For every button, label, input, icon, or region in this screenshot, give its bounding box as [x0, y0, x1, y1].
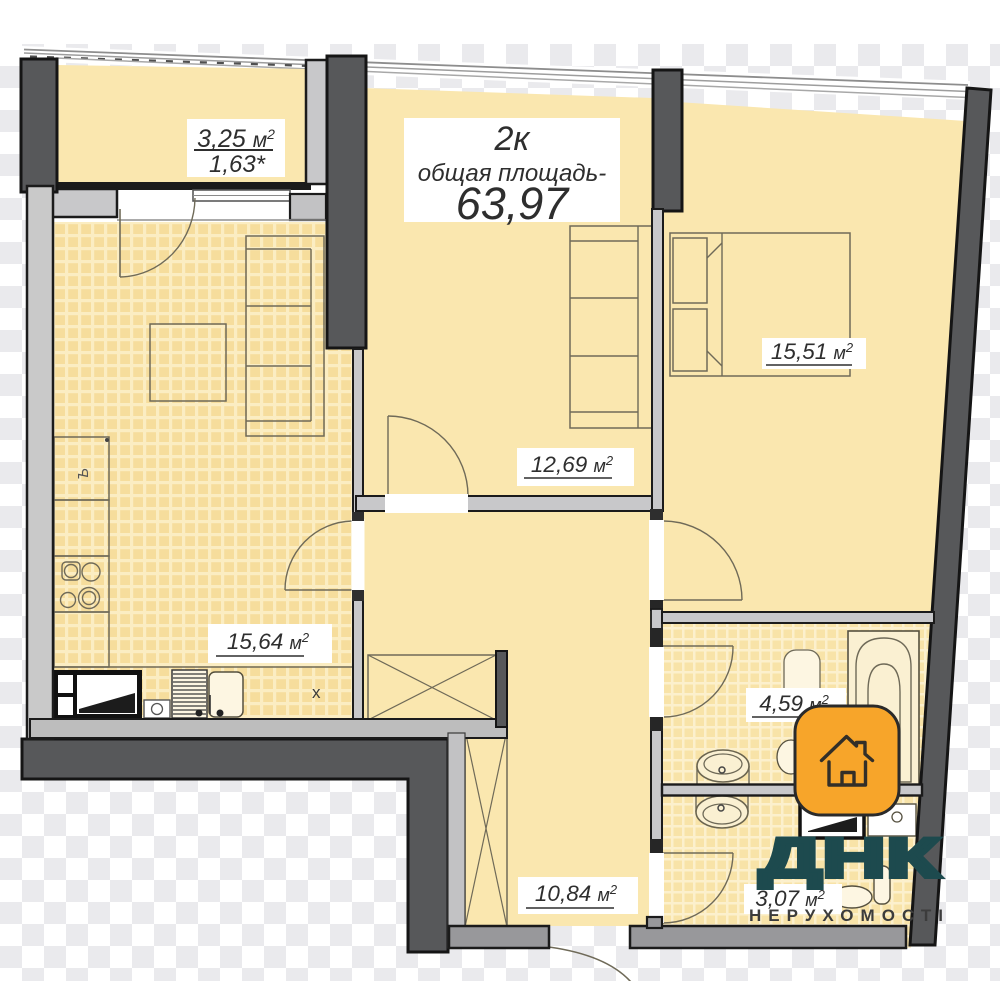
svg-text:63,97: 63,97 [456, 178, 571, 229]
svg-text:15,51 м2: 15,51 м2 [771, 339, 854, 364]
svg-text:Ъ: Ъ [75, 468, 92, 480]
svg-text:15,64 м2: 15,64 м2 [227, 629, 310, 654]
svg-text:12,69 м2: 12,69 м2 [531, 452, 614, 477]
svg-text:1,63*: 1,63* [209, 151, 266, 178]
svg-text:3,25 м2: 3,25 м2 [197, 125, 275, 153]
svg-text:ДНК: ДНК [759, 826, 941, 889]
svg-text:10,84 м2: 10,84 м2 [535, 881, 618, 906]
svg-text:2к: 2к [494, 120, 532, 158]
svg-text:x: x [312, 683, 321, 702]
